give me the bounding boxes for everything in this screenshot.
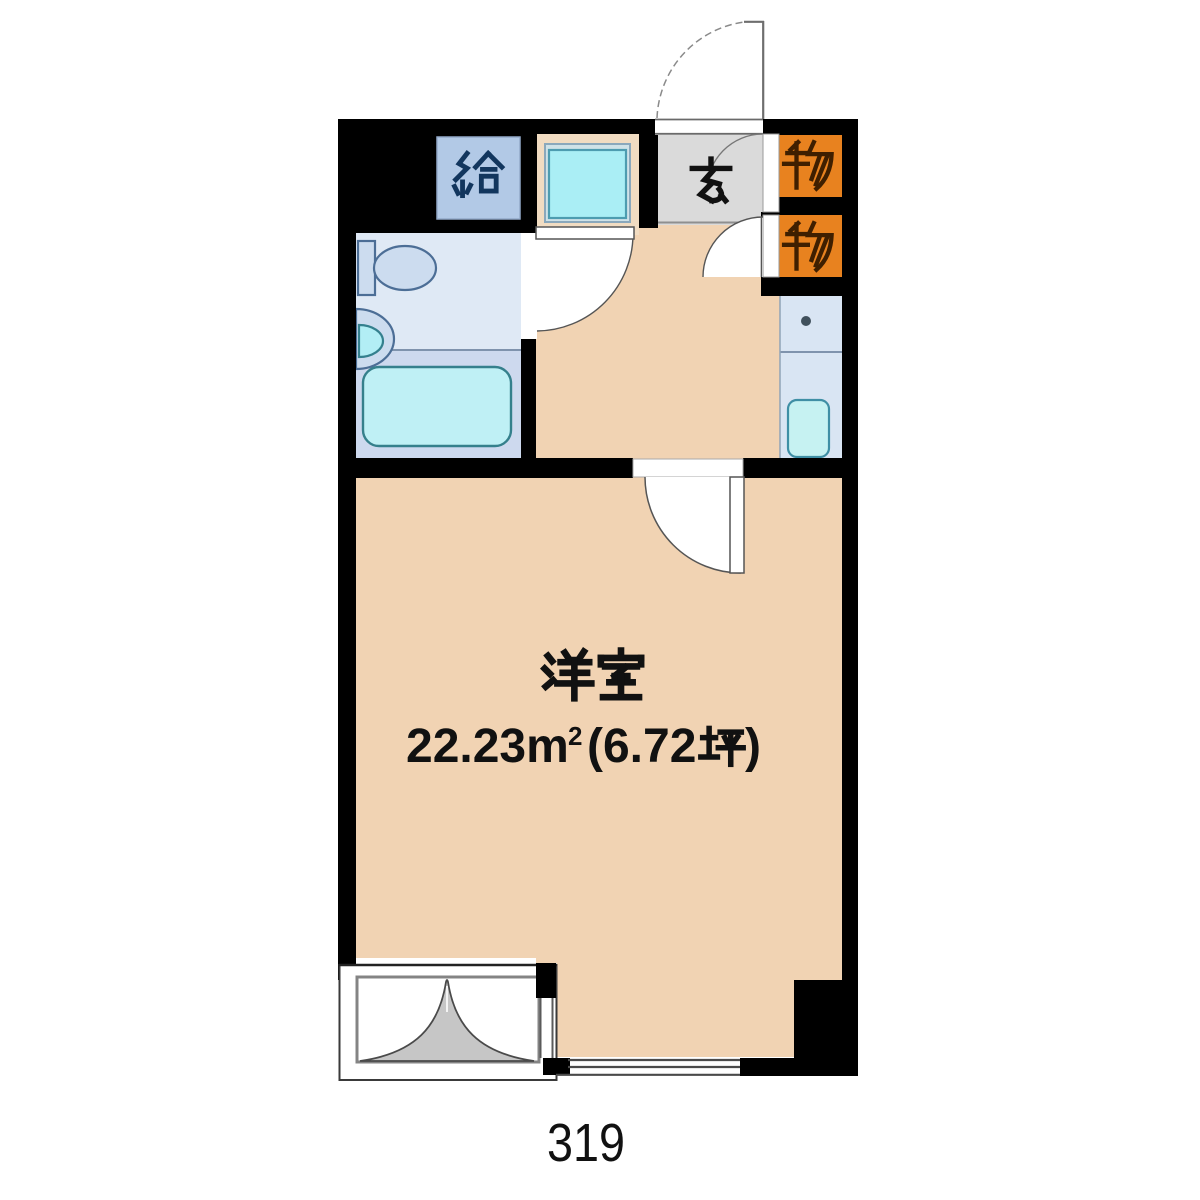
svg-text:2: 2 — [568, 721, 582, 751]
svg-text:319: 319 — [547, 1113, 625, 1173]
svg-text:22.23m: 22.23m — [406, 720, 569, 773]
svg-text:(6.72: (6.72 — [587, 720, 696, 773]
svg-text:): ) — [745, 720, 761, 773]
